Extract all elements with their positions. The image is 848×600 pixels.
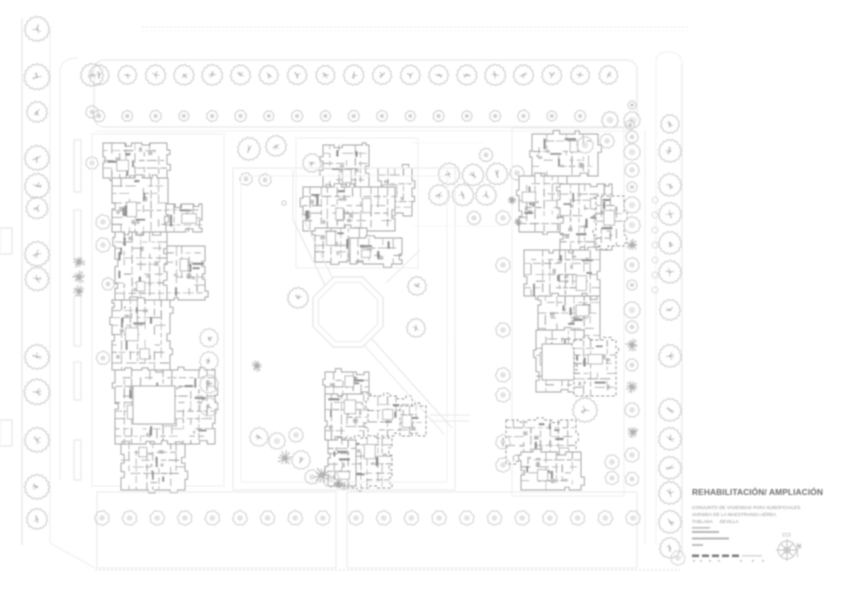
- svg-text:TABLADA SEVILLA: TABLADA SEVILLA: [692, 519, 739, 524]
- svg-text:CONJUNTO DE VIVIENDAS PARA SUB: CONJUNTO DE VIVIENDAS PARA SUBOFICIALES: [692, 505, 801, 510]
- svg-text:AVENIDA DE LA MAESTRANZA AÉREA: AVENIDA DE LA MAESTRANZA AÉREA: [692, 511, 776, 517]
- svg-text:REHABILITACIÓN/ AMPLIACIÓN: REHABILITACIÓN/ AMPLIACIÓN: [692, 486, 823, 497]
